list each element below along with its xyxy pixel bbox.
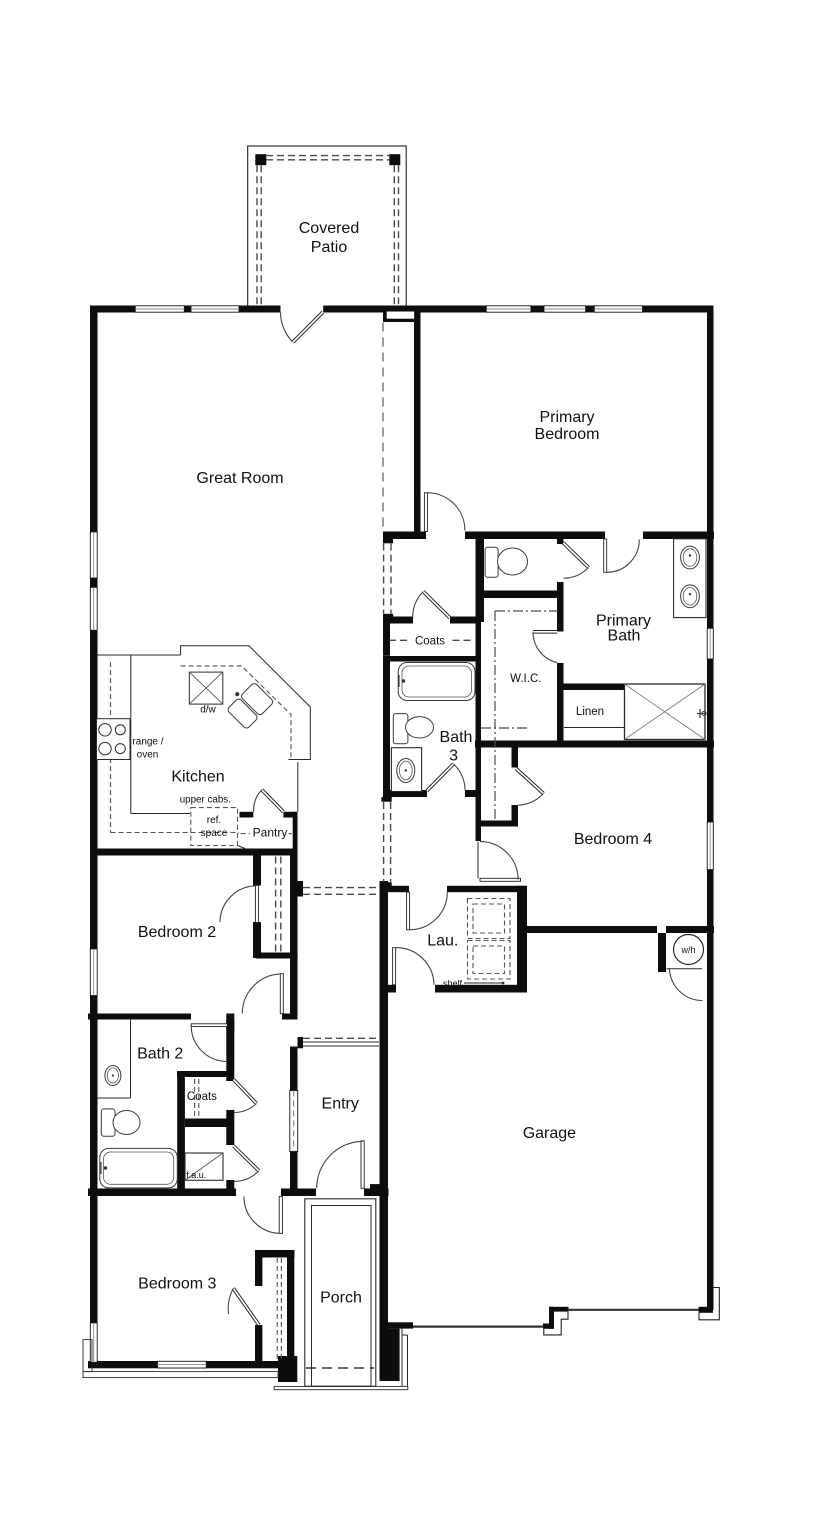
svg-text:Pantry: Pantry	[253, 826, 288, 840]
svg-text:Bath 2: Bath 2	[137, 1046, 183, 1063]
svg-text:Great Room: Great Room	[196, 470, 283, 487]
svg-text:Bath: Bath	[608, 628, 641, 645]
svg-text:Bath: Bath	[440, 729, 473, 746]
svg-text:space: space	[201, 828, 228, 839]
svg-text:Bedroom 4: Bedroom 4	[574, 831, 652, 848]
svg-text:shelf: shelf	[443, 979, 463, 989]
svg-text:Bedroom: Bedroom	[535, 426, 600, 443]
svg-text:Coats: Coats	[187, 1091, 217, 1103]
svg-text:Coats: Coats	[415, 636, 445, 648]
svg-text:W.I.C.: W.I.C.	[510, 673, 541, 685]
svg-text:Bedroom 3: Bedroom 3	[138, 1276, 216, 1293]
svg-text:Patio: Patio	[311, 239, 348, 256]
svg-text:Linen: Linen	[576, 706, 604, 718]
svg-text:range /: range /	[132, 737, 163, 748]
svg-text:oven: oven	[137, 750, 159, 761]
svg-text:ref.: ref.	[207, 815, 221, 826]
svg-text:Garage: Garage	[523, 1125, 576, 1142]
svg-text:Primary: Primary	[539, 409, 594, 426]
svg-text:w/h: w/h	[680, 945, 695, 955]
svg-text:Porch: Porch	[320, 1290, 362, 1307]
svg-text:Kitchen: Kitchen	[171, 769, 224, 786]
svg-text:Lau.: Lau.	[427, 933, 458, 950]
svg-text:d/w: d/w	[200, 705, 216, 716]
svg-text:Covered: Covered	[299, 220, 359, 237]
svg-text:Entry: Entry	[322, 1096, 359, 1113]
svg-text:f.a.u.: f.a.u.	[186, 1170, 206, 1180]
svg-text:Bedroom 2: Bedroom 2	[138, 924, 216, 941]
svg-text:upper cabs.: upper cabs.	[180, 795, 231, 806]
svg-text:3: 3	[449, 748, 458, 765]
